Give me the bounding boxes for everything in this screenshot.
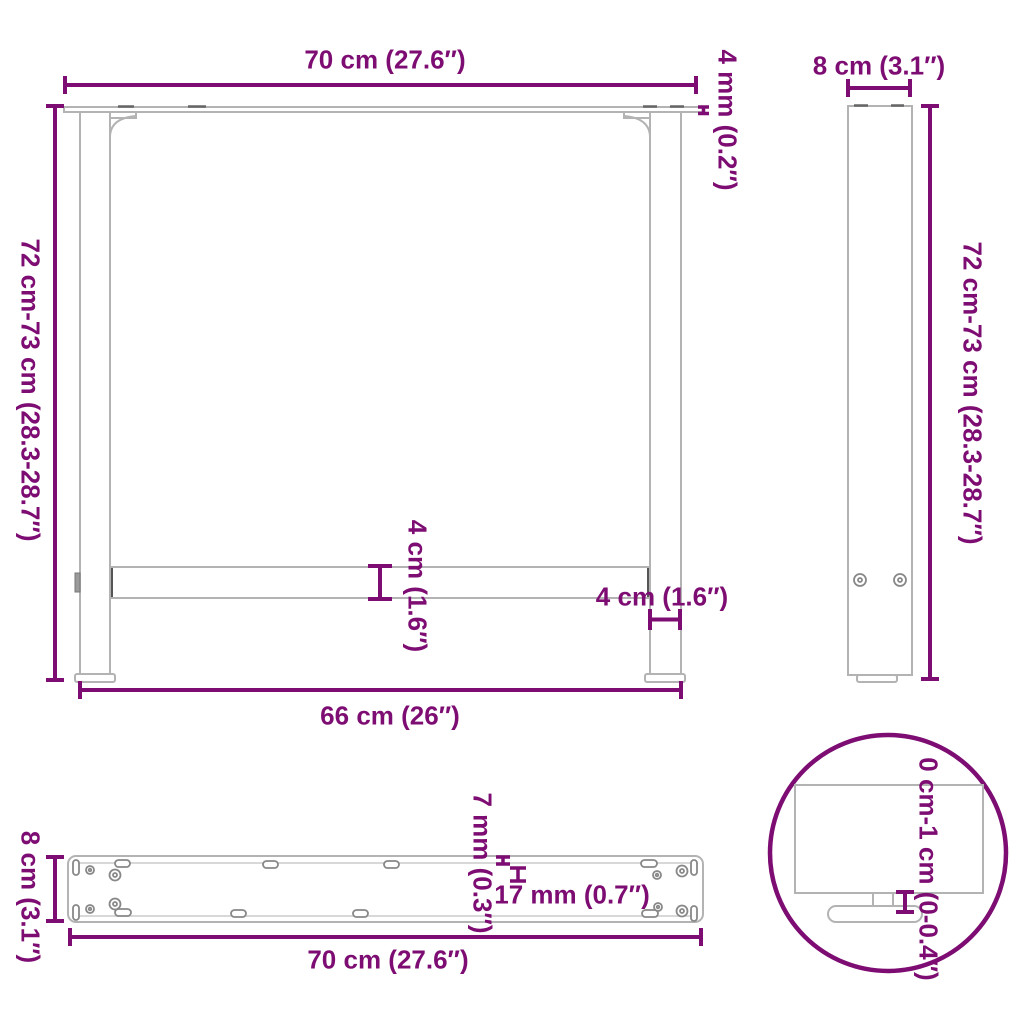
plate-slot-length-label: 17 mm (0.7″) [494,880,650,911]
side-screw-hole-center [858,578,862,582]
front-top-width-label: 70 cm (27.6″) [304,45,465,76]
leg-side-tab [75,573,80,592]
plate-depth-label: 8 cm (3.1″) [15,831,46,963]
plate-hole-diameter-label: 7 mm (0.3″) [467,792,498,933]
front-height-label: 72 cm-73 cm (28.3-28.7″) [15,239,46,542]
plate-end-slot [73,860,79,875]
plate-screw-hole-center [113,873,117,877]
plate-slot [641,860,657,867]
plate-slot [642,910,658,917]
plate-slot [115,860,130,867]
front-left-leg [80,112,110,675]
plate-width-label: 70 cm (27.6″) [307,945,468,976]
plate-screw-hole-center [89,869,92,872]
plate-screw-hole-center [680,909,684,913]
side-foot [857,675,897,682]
side-leg-body [848,106,912,675]
plate-screw-hole-center [656,874,659,877]
plate-screw-hole-center [680,869,684,873]
front-top-plate [64,107,704,112]
front-right-foot [645,674,685,682]
plate-slot [384,861,399,868]
plate-end-slot [691,860,697,875]
dimension-diagram: 70 cm (27.6″) 4 mm (0.2″) 72 cm-73 cm (2… [0,0,1024,1024]
plate-slot [263,861,278,868]
plate-slot [231,910,246,917]
side-screw-hole-center [898,578,902,582]
side-depth-label: 8 cm (3.1″) [813,51,945,82]
front-leg-width-label: 4 cm (1.6″) [596,582,728,613]
side-view-drawing [848,106,912,683]
plate-end-slot [691,906,697,921]
front-bottom-width-label: 66 cm (26″) [320,701,460,732]
plate-end-slot [73,905,79,920]
side-height-label: 72 cm-73 cm (28.3-28.7″) [957,242,988,545]
detail-adjustable-height-label: 0 cm-1 cm (0-0.4″) [913,757,944,980]
plate-screw-hole-center [657,906,660,909]
diagram-canvas [0,0,1024,1024]
detail-view-drawing [770,735,1006,971]
front-left-foot [75,674,115,682]
detail-foot-stem [873,893,893,907]
plate-screw-hole-center [113,902,117,906]
plate-screw-hole-center [89,908,92,911]
detail-leg-bottom [795,785,983,893]
front-plate-thickness-label: 4 mm (0.2″) [712,49,743,190]
plate-slot [115,909,131,916]
plate-slot [353,910,368,917]
front-crossbar-height-label: 4 cm (1.6″) [402,520,433,652]
